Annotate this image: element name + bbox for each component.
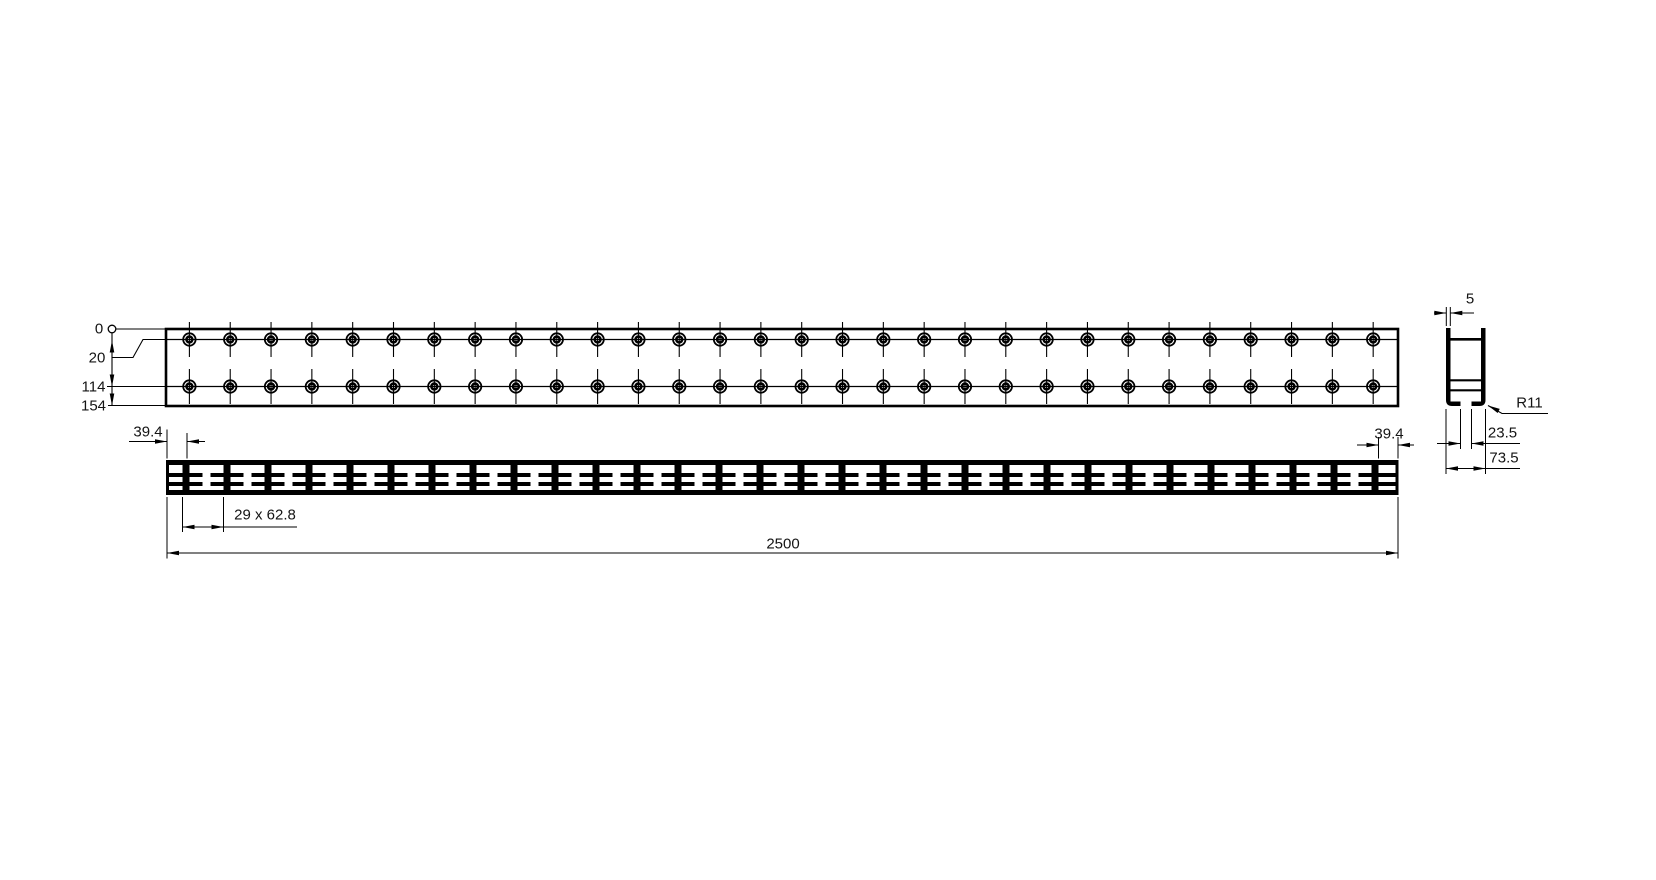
dim-profile-width: 73.5 bbox=[1489, 451, 1518, 466]
dim-lip-thickness: 5 bbox=[1466, 292, 1474, 307]
drawing-sheet: 0 20 114 154 39.4 29 x 62.8 2500 39.4 5 … bbox=[0, 0, 1656, 880]
ordinate-label-0: 0 bbox=[95, 322, 103, 337]
ordinate-label-114: 114 bbox=[82, 380, 106, 395]
dim-overall-length: 2500 bbox=[766, 536, 799, 551]
dim-slot-opening: 23.5 bbox=[1488, 426, 1517, 441]
dim-slot-pitch: 29 x 62.8 bbox=[234, 508, 296, 523]
ordinate-label-20: 20 bbox=[89, 350, 106, 365]
ordinate-label-154: 154 bbox=[81, 398, 106, 413]
dim-left-end-offset: 39.4 bbox=[133, 424, 162, 439]
dim-corner-radius: R11 bbox=[1516, 395, 1542, 410]
dim-right-end-offset: 39.4 bbox=[1374, 426, 1403, 441]
cad-linework bbox=[0, 0, 1656, 880]
